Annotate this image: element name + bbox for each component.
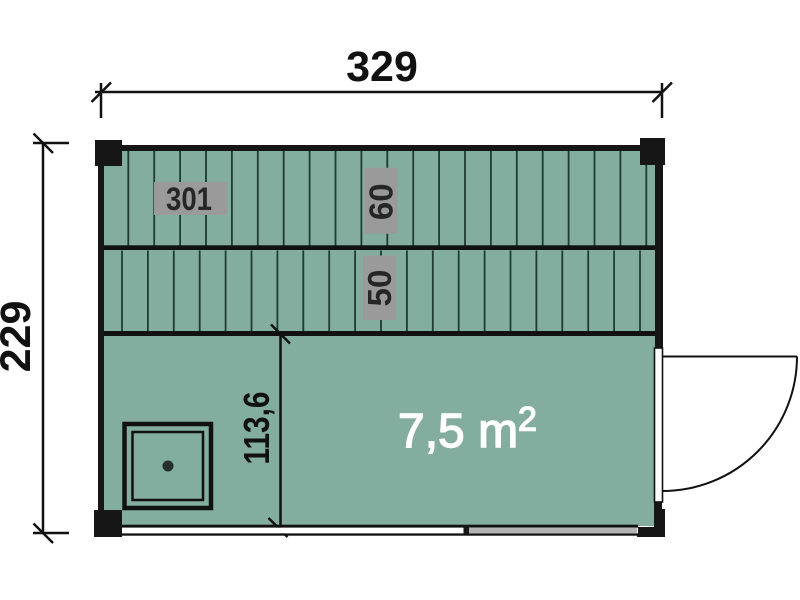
svg-text:50: 50 <box>361 270 398 307</box>
svg-text:329: 329 <box>346 43 418 91</box>
svg-text:113,6: 113,6 <box>236 392 277 465</box>
svg-text:301: 301 <box>166 181 212 217</box>
svg-text:60: 60 <box>363 183 400 220</box>
svg-text:7,5 m2: 7,5 m2 <box>398 401 537 459</box>
svg-text:229: 229 <box>0 301 40 373</box>
